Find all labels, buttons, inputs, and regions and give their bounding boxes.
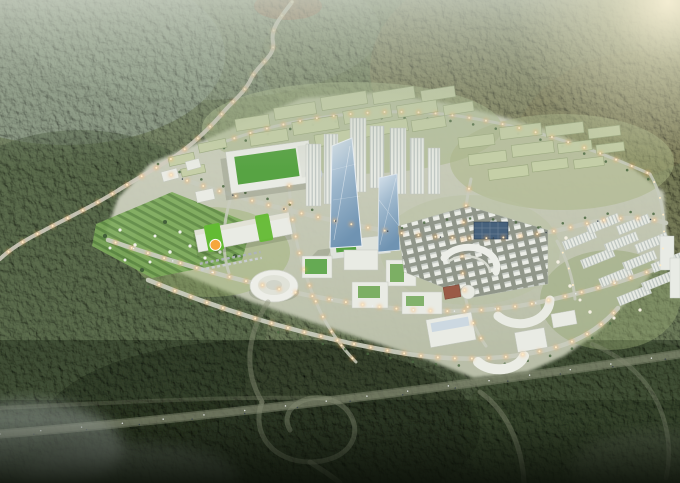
- office-green-roof: [358, 286, 380, 298]
- apartment-tower: [670, 258, 680, 298]
- dome-hall: [249, 270, 299, 302]
- aerial-rendering: [0, 0, 680, 483]
- office-green-roof: [406, 296, 424, 306]
- office-block: [344, 250, 378, 270]
- red-roof-building: [443, 285, 461, 300]
- office-green-roof: [390, 264, 404, 282]
- scene-canvas: [0, 0, 680, 483]
- office-green-roof: [305, 259, 327, 274]
- dusk-vignette: [0, 420, 680, 483]
